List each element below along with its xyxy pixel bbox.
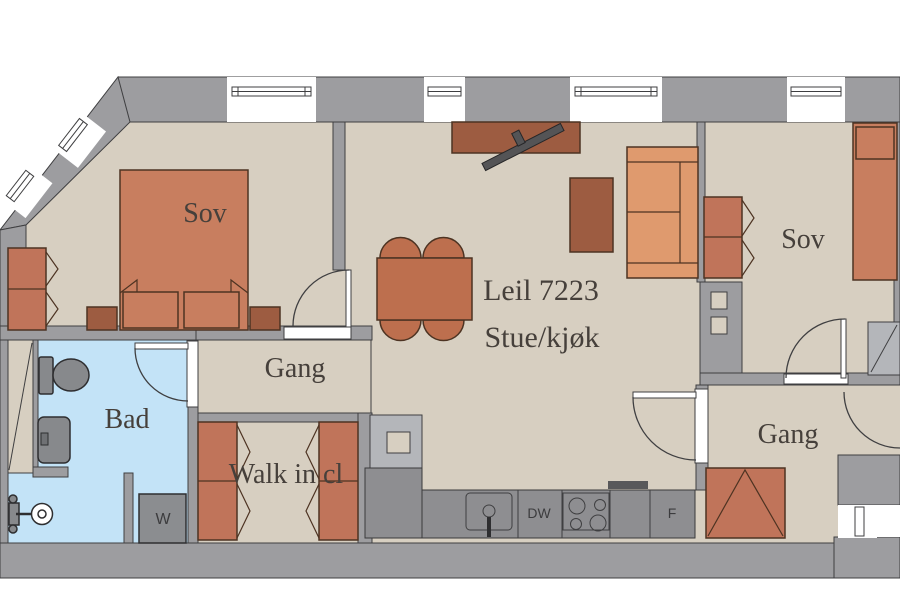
label-apartment: Leil 7223 (483, 274, 599, 307)
sofa (627, 147, 698, 278)
washing-machine: W (139, 494, 186, 543)
duct-opening-2 (711, 317, 727, 334)
label-bedroom-right: Sov (781, 224, 825, 255)
label-bathroom: Bad (104, 404, 149, 435)
kitchen-duct-opening (387, 432, 410, 453)
bathroom-divider-wall (124, 473, 133, 543)
left-exterior-wall-lower (0, 340, 8, 545)
faucet (487, 517, 491, 537)
washer-label: W (155, 511, 171, 528)
entry-vestibule-wall (838, 455, 900, 505)
toilet (39, 357, 89, 394)
coffee-table (570, 178, 613, 252)
nightstand-right (250, 307, 280, 330)
dining-set (377, 237, 472, 340)
kitchen-counter (422, 490, 695, 538)
label-walk-in-closet: Walk in cl (229, 459, 344, 490)
fridge-label: F (668, 505, 677, 521)
wall-bathroom-closet (188, 407, 198, 543)
bathroom-sink (38, 417, 70, 463)
wall-bedroomleft-living (333, 122, 345, 270)
bed-right (853, 123, 897, 280)
pillow-left (123, 292, 178, 328)
wall-hall-closet (196, 413, 372, 422)
dining-table (377, 258, 472, 320)
dishwasher-label: DW (527, 505, 551, 521)
bathroom-stub-wall (33, 467, 68, 477)
window-2 (424, 77, 465, 122)
window-4 (787, 77, 845, 122)
double-bed-left (120, 170, 248, 330)
label-bedroom-left: Sov (183, 198, 227, 229)
kitchen-counter-corner (365, 468, 422, 538)
label-hall-upper: Gang (265, 353, 326, 384)
floor-plan-svg: W (0, 0, 900, 600)
label-living-kitchen: Stue/kjøk (484, 321, 599, 354)
floor-plan: W (0, 0, 900, 600)
pillow (856, 127, 894, 159)
pillow-right (184, 292, 239, 328)
range-hood (608, 481, 648, 489)
bottom-right-exterior-wall (834, 537, 900, 578)
bottom-exterior-wall (0, 543, 838, 578)
hall-wardrobe (706, 468, 785, 538)
label-hall-entry: Gang (758, 419, 819, 450)
nightstand-left (87, 307, 117, 330)
duct-opening-1 (711, 292, 727, 309)
window-3 (570, 77, 662, 122)
window-1 (227, 77, 316, 122)
